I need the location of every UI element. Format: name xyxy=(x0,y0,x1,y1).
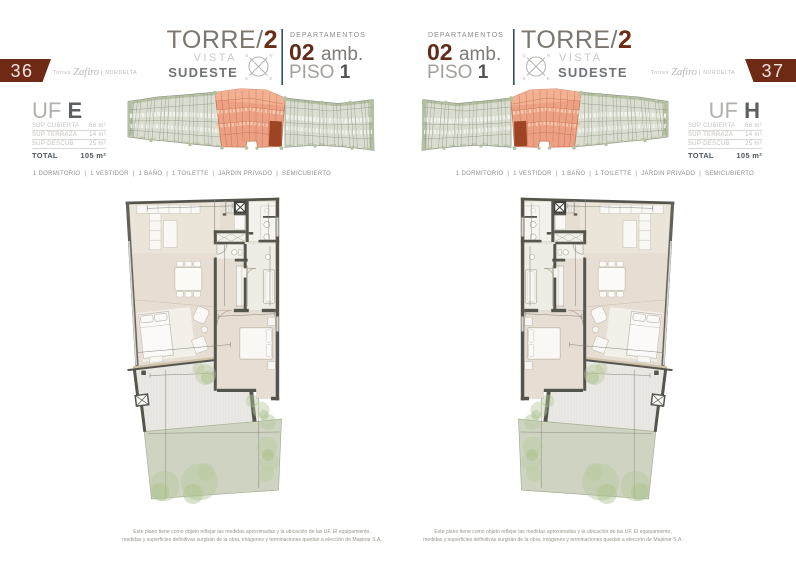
svg-text:E: E xyxy=(270,76,273,81)
svg-text:S: S xyxy=(245,76,248,81)
svg-text:S: S xyxy=(523,76,526,81)
svg-text:E: E xyxy=(547,76,550,81)
